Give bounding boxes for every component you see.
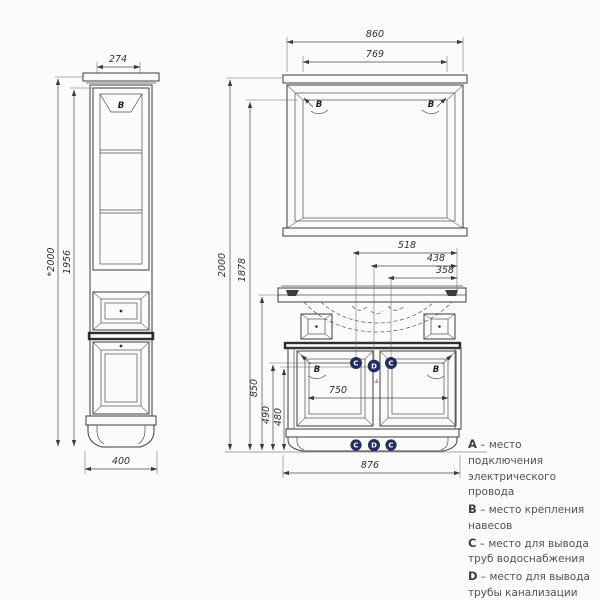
svg-text:C: C	[388, 360, 393, 368]
legend-letter-b: B	[468, 502, 477, 516]
technical-drawing-page: B 274 *2000	[0, 0, 600, 600]
svg-text:D: D	[371, 363, 377, 371]
legend-item-b: B – место крепления навесов	[468, 501, 598, 535]
hinge-label-cabinet: B	[118, 101, 124, 111]
dim-2000-left: *2000	[46, 248, 57, 277]
legend-text-d: – место для вывода трубы канализации	[468, 571, 590, 599]
dim-438: 438	[427, 253, 445, 264]
legend-letter-c: C	[468, 536, 476, 550]
legend: А – место подключения электрического про…	[468, 436, 598, 600]
dim-769: 769	[366, 49, 384, 60]
legend-item-a: А – место подключения электрического про…	[468, 436, 598, 501]
tall-cabinet: B	[83, 73, 159, 447]
dim-860: 860	[366, 29, 384, 40]
dim-480: 480	[273, 408, 284, 426]
dim-358: 358	[436, 265, 454, 276]
legend-letter-a: А	[468, 437, 477, 451]
side-panel-left	[301, 314, 332, 339]
sink-outline	[304, 302, 452, 332]
dim-400: 400	[112, 456, 130, 467]
hinge-label-door-right: B	[433, 365, 439, 375]
dim-518: 518	[398, 240, 416, 251]
svg-text:C: C	[353, 360, 358, 368]
legend-letter-d: D	[468, 569, 478, 583]
mirror: B B	[283, 75, 467, 236]
dim-274: 274	[109, 54, 127, 65]
side-panel-right	[424, 314, 455, 339]
svg-text:C: C	[388, 442, 393, 450]
dim-850: 850	[249, 379, 260, 397]
svg-text:C: C	[353, 442, 358, 450]
legend-text-b: – место крепления навесов	[468, 504, 584, 532]
svg-text:D: D	[371, 442, 377, 450]
legend-text-c: – место для вывода труб водоснабжения	[468, 538, 589, 566]
dim-2000-right: 2000	[217, 253, 228, 277]
dim-876: 876	[361, 460, 379, 471]
dim-1878: 1878	[237, 258, 248, 282]
dim-490: 490	[261, 406, 272, 424]
hinge-label-mirror-right: B	[428, 100, 434, 110]
mirror-dimensions: 860 769	[287, 29, 463, 72]
legend-item-d: D – место для вывода трубы канализации	[468, 568, 598, 600]
legend-item-c: C – место для вывода труб водоснабжения	[468, 535, 598, 569]
hinge-label-mirror-left: B	[316, 100, 322, 110]
dim-750: 750	[329, 385, 347, 396]
dim-1956: 1956	[62, 250, 73, 274]
hinge-label-door-left: B	[314, 365, 320, 375]
legend-text-a: – место подключения электрического прово…	[468, 439, 556, 498]
